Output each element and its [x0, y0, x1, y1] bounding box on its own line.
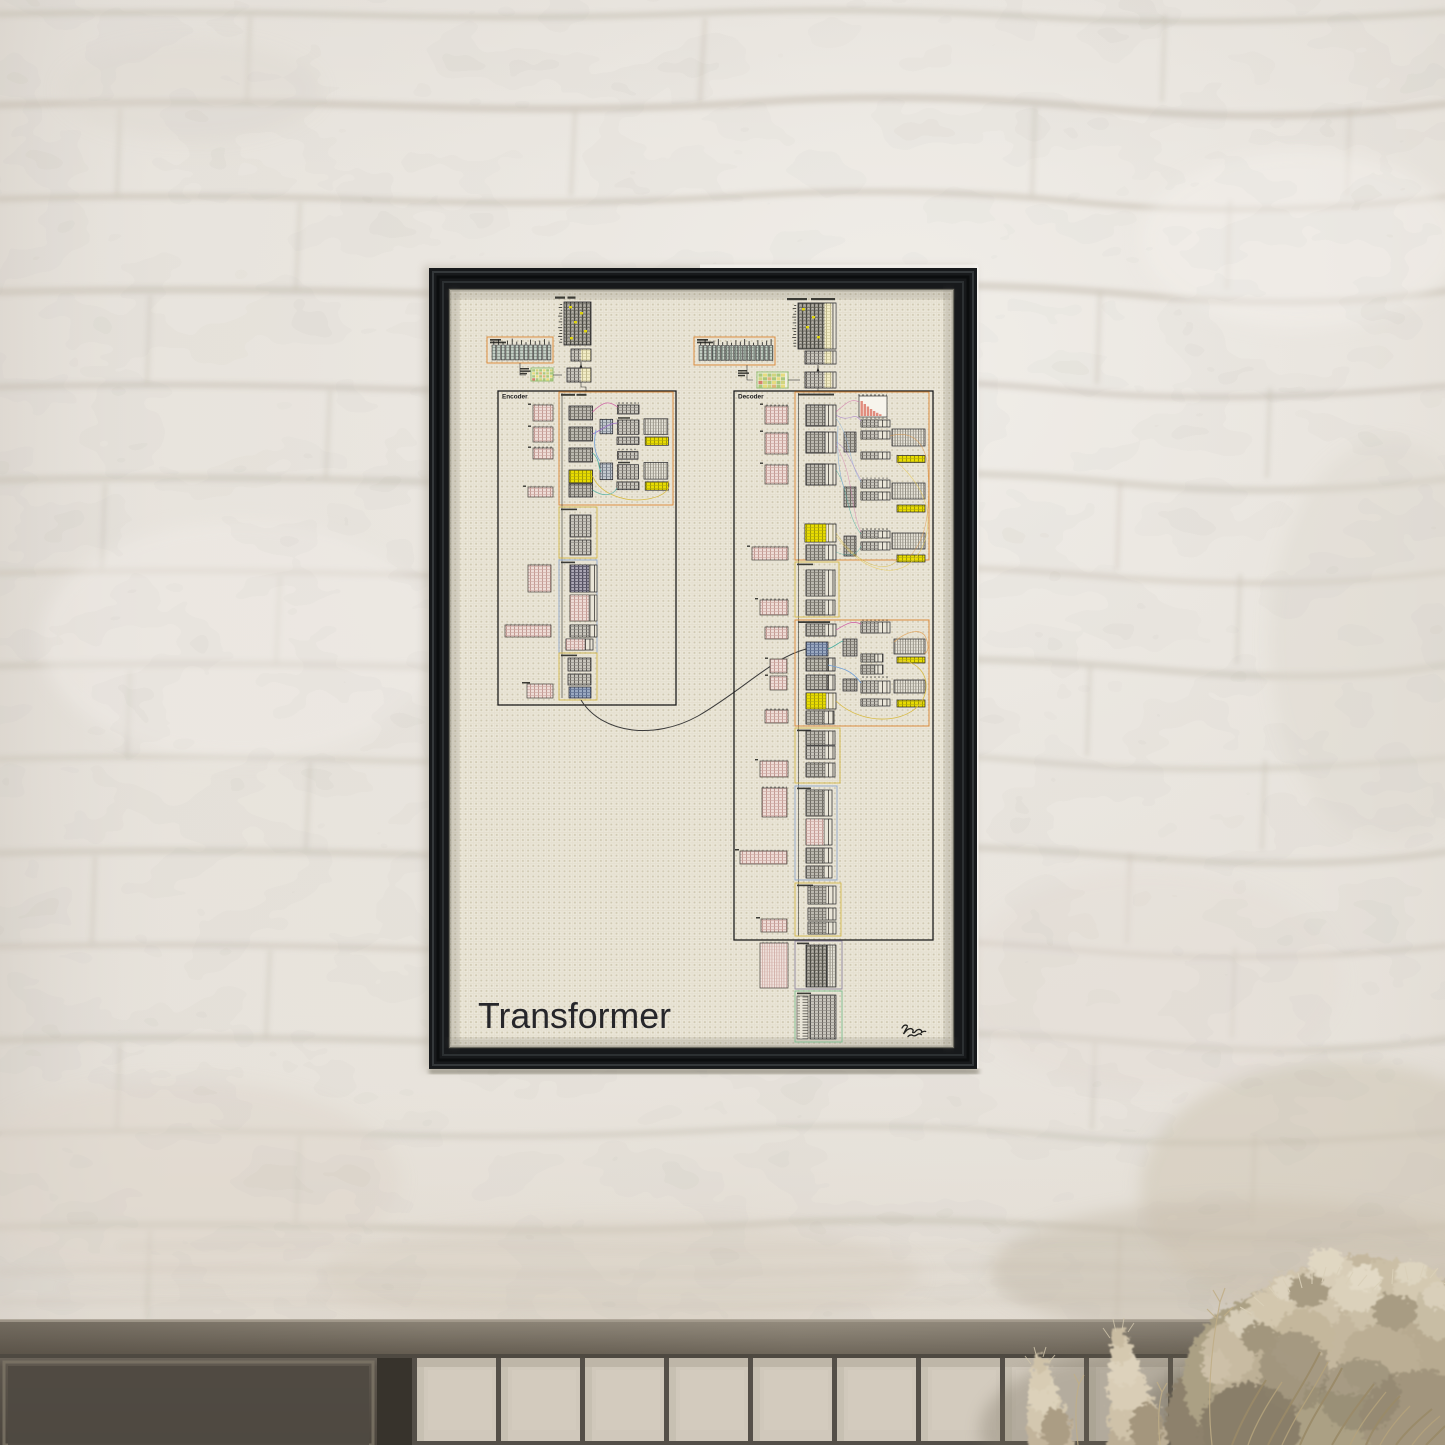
- svg-text:Transformer: Transformer: [478, 995, 671, 1036]
- svg-text:Decoder: Decoder: [738, 394, 764, 401]
- svg-text:Encoder: Encoder: [502, 394, 528, 401]
